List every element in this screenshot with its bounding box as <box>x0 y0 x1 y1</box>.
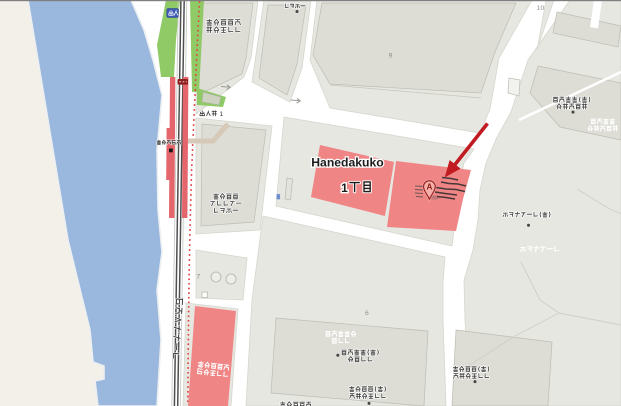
svg-text:6: 6 <box>365 310 369 317</box>
svg-text:1: 1 <box>220 111 224 118</box>
svg-text:9: 9 <box>389 52 393 59</box>
svg-text:7: 7 <box>197 273 201 280</box>
svg-text:10: 10 <box>537 5 545 12</box>
svg-text:Hanedakuko: Hanedakuko <box>311 156 383 170</box>
svg-text:1: 1 <box>341 181 348 195</box>
svg-text:A: A <box>426 183 432 192</box>
